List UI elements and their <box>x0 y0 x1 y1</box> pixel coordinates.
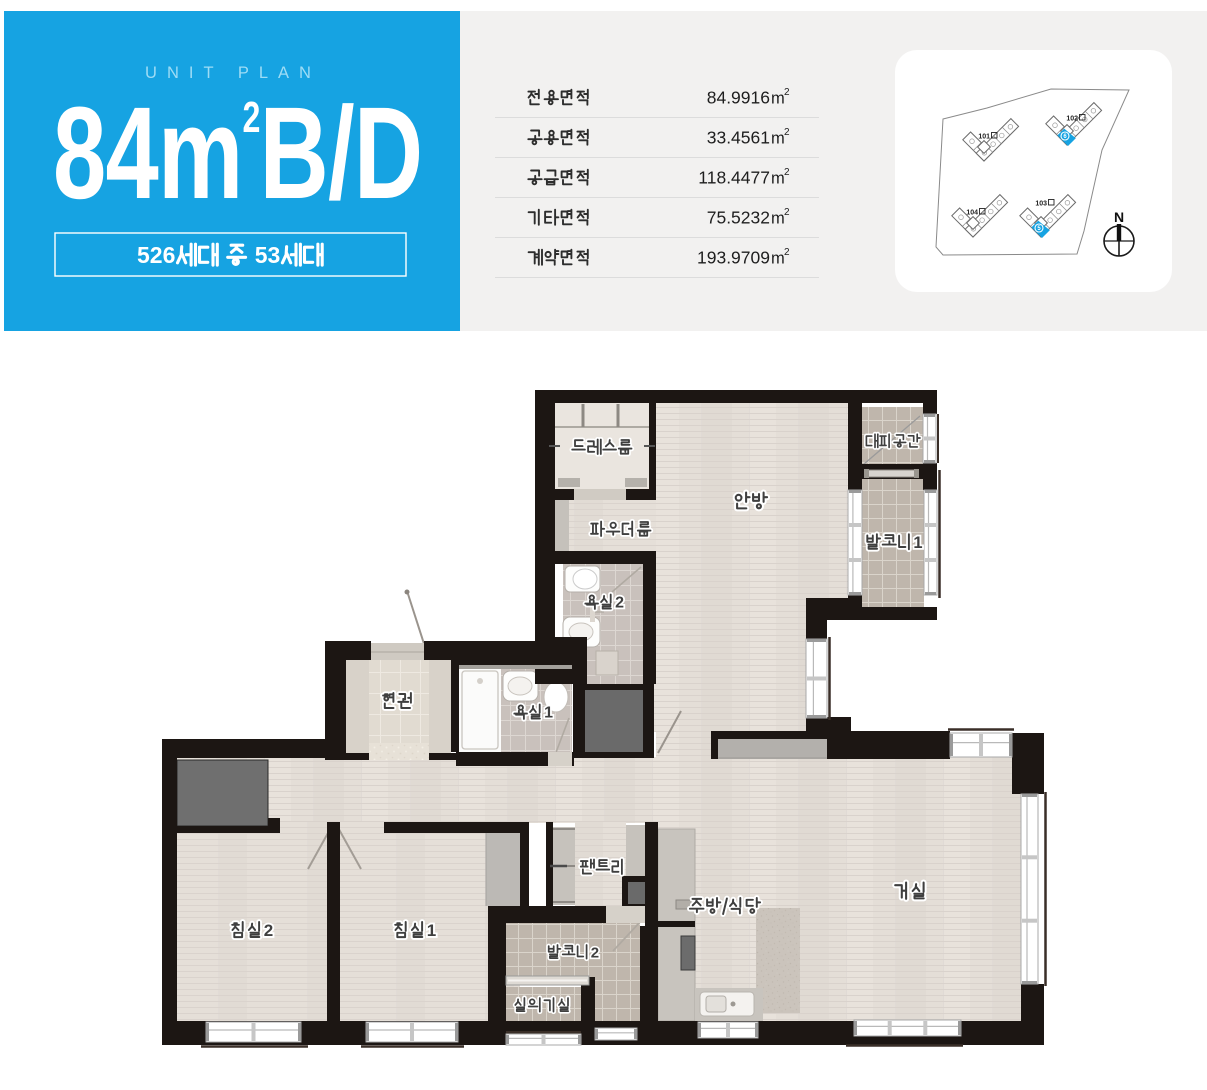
svg-text:102: 102 <box>1066 116 1078 123</box>
svg-text:1: 1 <box>427 921 436 940</box>
svg-text:1: 1 <box>544 705 553 722</box>
svg-text:m: m <box>771 250 785 268</box>
svg-text:5: 5 <box>255 242 268 268</box>
svg-text:1: 1 <box>913 534 922 552</box>
svg-text:m: m <box>771 90 785 108</box>
svg-text:2: 2 <box>784 87 790 98</box>
svg-text:5: 5 <box>137 242 150 268</box>
svg-text:75.5232: 75.5232 <box>707 208 770 228</box>
svg-text:m: m <box>771 170 785 188</box>
svg-text:103: 103 <box>1035 201 1047 208</box>
svg-text:2: 2 <box>784 207 790 218</box>
svg-text:m: m <box>771 210 785 228</box>
svg-text:84m2B/D: 84m2B/D <box>53 80 422 226</box>
svg-text:2: 2 <box>784 167 790 178</box>
svg-text:2: 2 <box>591 944 599 961</box>
svg-text:101: 101 <box>978 134 990 141</box>
svg-text:193.9709: 193.9709 <box>697 248 770 268</box>
svg-text:2: 2 <box>784 247 790 258</box>
svg-text:UNIT PLAN: UNIT PLAN <box>145 64 321 82</box>
svg-text:2: 2 <box>150 242 163 268</box>
svg-text:3: 3 <box>268 242 281 268</box>
svg-text:33.4561: 33.4561 <box>707 128 770 148</box>
svg-text:N: N <box>1114 209 1124 225</box>
svg-text:6: 6 <box>163 242 176 268</box>
svg-text:104: 104 <box>966 210 978 217</box>
svg-text:84.9916: 84.9916 <box>707 88 770 108</box>
svg-text:118.4477: 118.4477 <box>698 168 770 188</box>
svg-text:2: 2 <box>615 595 624 612</box>
svg-text:2: 2 <box>784 127 790 138</box>
svg-text:m: m <box>771 130 785 148</box>
svg-text:2: 2 <box>264 921 273 940</box>
